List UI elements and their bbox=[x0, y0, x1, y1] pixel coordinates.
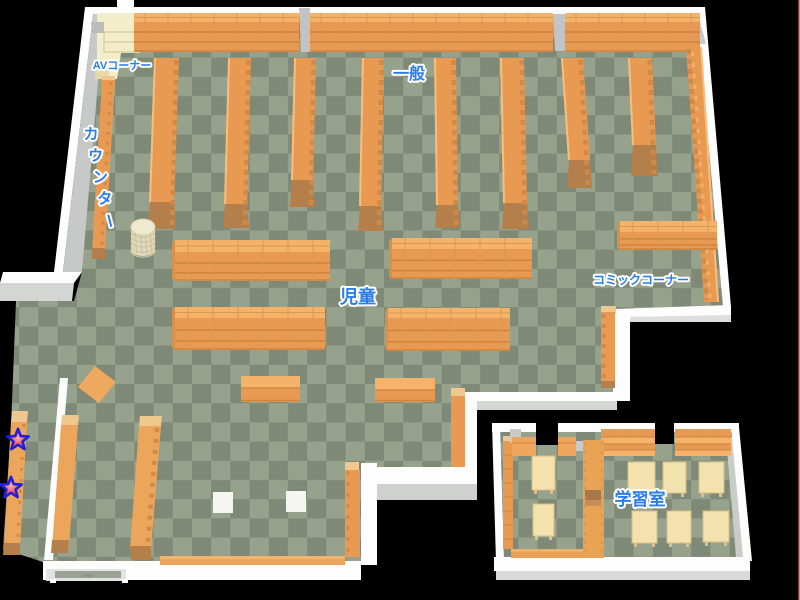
svg-text:タ: タ bbox=[97, 191, 112, 208]
svg-text:一般: 一般 bbox=[393, 64, 425, 83]
svg-text:ン: ン bbox=[93, 169, 108, 186]
svg-text:コミックコーナー: コミックコーナー bbox=[593, 273, 689, 287]
svg-text:児童: 児童 bbox=[339, 286, 376, 307]
svg-text:ウ: ウ bbox=[88, 148, 103, 165]
svg-text:AVコーナー: AVコーナー bbox=[93, 59, 151, 72]
svg-text:学習室: 学習室 bbox=[615, 489, 666, 509]
svg-text:カ: カ bbox=[83, 126, 98, 143]
